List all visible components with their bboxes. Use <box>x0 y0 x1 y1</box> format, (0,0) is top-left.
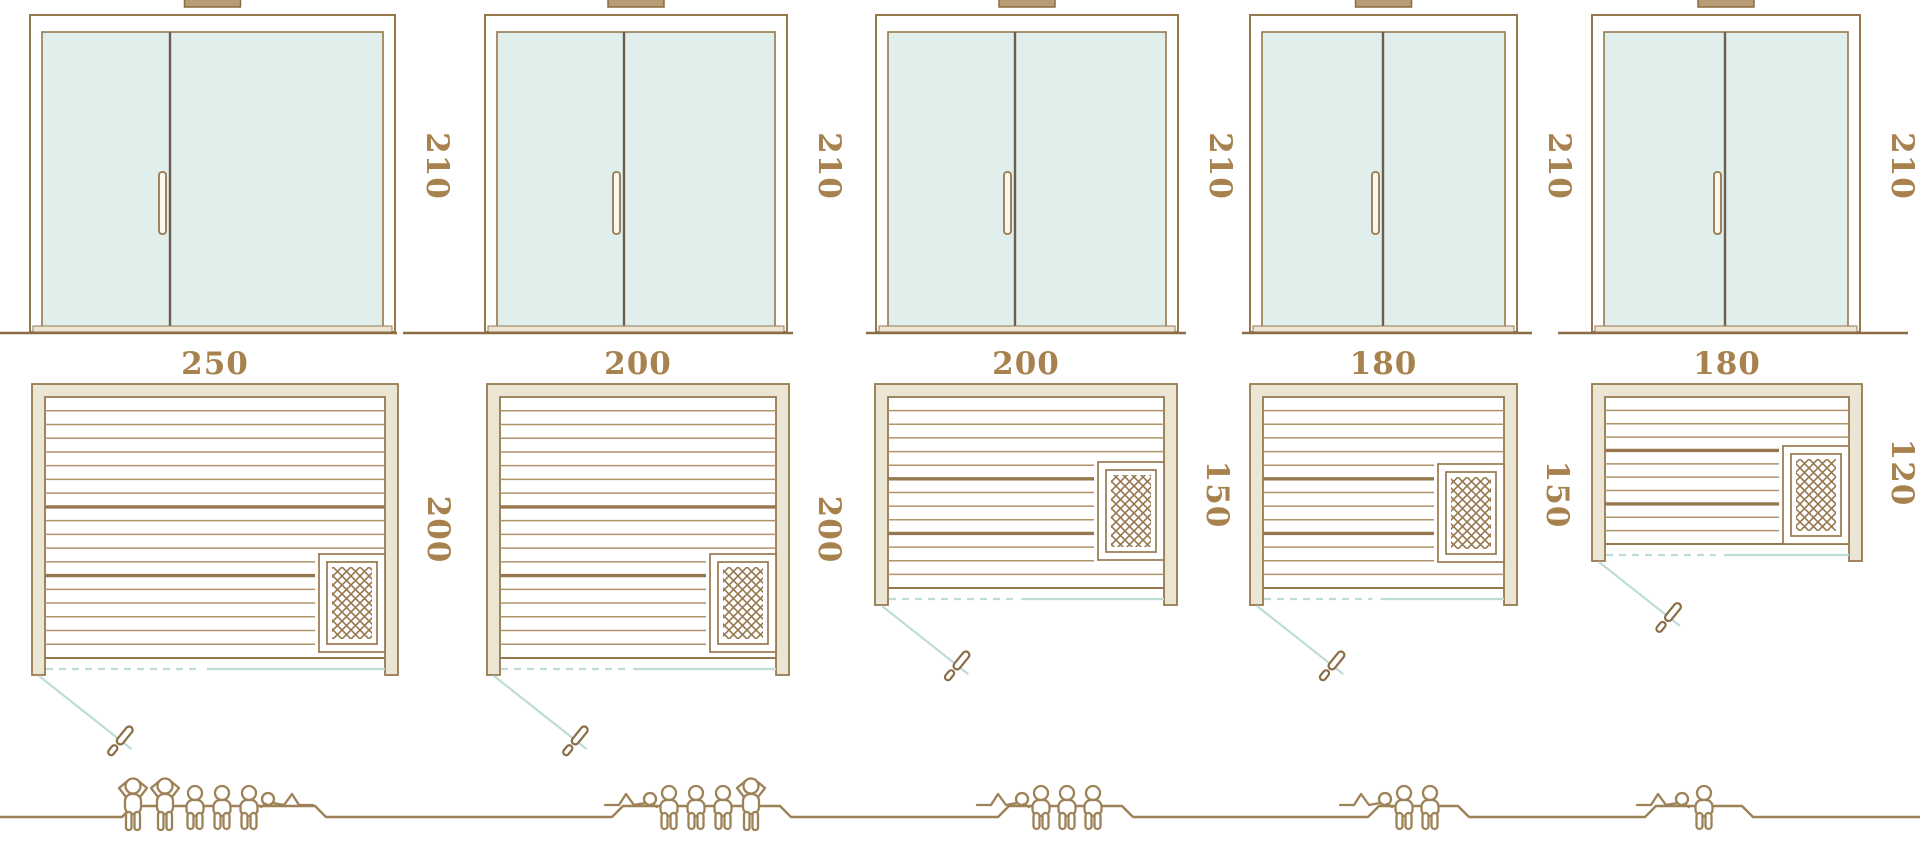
people-capacity-group-1 <box>119 779 313 831</box>
door-leaf-icon <box>943 650 970 682</box>
width-dimension-label: 180 <box>1350 346 1418 382</box>
person-lying-icon <box>977 793 1029 807</box>
sauna-column-sauna-180x120: 210180120 <box>1558 0 1920 633</box>
heater-lattice-icon <box>1796 459 1836 531</box>
roof-vent-cap <box>999 0 1055 7</box>
person-sitting-icon <box>241 786 258 829</box>
door-handle-icon <box>613 172 620 234</box>
person-standing-icon <box>151 779 179 831</box>
sauna-column-sauna-250x200: 210250200 <box>0 0 456 757</box>
door-handle-icon <box>1714 172 1721 234</box>
sauna-sizes-canvas: 2102502002102002002102001502101801502101… <box>0 0 1920 856</box>
person-sitting-icon <box>661 786 678 829</box>
width-dimension-label: 180 <box>1693 346 1761 382</box>
width-dimension-label: 200 <box>992 346 1060 382</box>
person-sitting-icon <box>715 786 732 829</box>
roof-vent-cap <box>185 0 241 7</box>
people-capacity-group-2 <box>605 779 765 831</box>
height-dimension-label: 210 <box>419 132 455 200</box>
door-leaf-icon <box>562 725 589 757</box>
roof-vent-cap <box>1356 0 1412 7</box>
people-capacity-group-3 <box>977 786 1102 829</box>
door-handle-icon <box>159 172 166 234</box>
sauna-column-sauna-200x200: 210200200 <box>403 0 847 757</box>
person-standing-icon <box>119 779 147 831</box>
depth-dimension-label: 150 <box>1199 461 1235 529</box>
heater-lattice-icon <box>1451 477 1491 549</box>
person-sitting-icon <box>1085 786 1102 829</box>
height-dimension-label: 210 <box>811 132 847 200</box>
height-dimension-label: 210 <box>1884 132 1920 200</box>
glass-panel <box>42 32 383 329</box>
glass-panel <box>497 32 775 329</box>
sauna-column-sauna-180x150: 210180150 <box>1242 0 1577 682</box>
person-sitting-icon <box>214 786 231 829</box>
people-capacity-group-5 <box>1637 786 1713 829</box>
door-threshold <box>488 326 784 332</box>
height-dimension-label: 210 <box>1541 132 1577 200</box>
depth-dimension-label: 200 <box>811 496 847 564</box>
person-sitting-icon <box>1033 786 1050 829</box>
people-capacity-group-4 <box>1340 786 1439 829</box>
sauna-sizes-diagram: 2102502002102002002102001502101801502101… <box>0 0 1920 856</box>
depth-dimension-label: 150 <box>1539 461 1575 529</box>
heater-lattice-icon <box>332 567 372 639</box>
door-threshold <box>33 326 392 332</box>
glass-panel <box>888 32 1166 329</box>
width-dimension-label: 250 <box>181 346 249 382</box>
person-standing-icon <box>737 779 765 831</box>
door-threshold <box>879 326 1175 332</box>
heater-lattice-icon <box>723 567 763 639</box>
door-leaf-icon <box>1318 650 1345 682</box>
capacity-ground-line <box>0 806 1920 817</box>
door-leaf-icon <box>1655 602 1682 634</box>
door-leaf-icon <box>107 725 134 757</box>
height-dimension-label: 210 <box>1202 132 1238 200</box>
width-dimension-label: 200 <box>604 346 672 382</box>
person-sitting-icon <box>688 786 705 829</box>
depth-dimension-label: 200 <box>420 496 456 564</box>
heater-lattice-icon <box>1111 475 1151 547</box>
person-sitting-icon <box>1396 786 1413 829</box>
door-handle-icon <box>1372 172 1379 234</box>
roof-vent-cap <box>1698 0 1754 7</box>
person-lying-icon <box>1340 793 1392 807</box>
sauna-column-sauna-200x150: 210200150 <box>866 0 1238 682</box>
person-sitting-icon <box>1422 786 1439 829</box>
depth-dimension-label: 120 <box>1884 439 1920 507</box>
roof-vent-cap <box>608 0 664 7</box>
person-sitting-icon <box>187 786 204 829</box>
door-handle-icon <box>1004 172 1011 234</box>
door-threshold <box>1253 326 1514 332</box>
person-sitting-icon <box>1696 786 1713 829</box>
person-sitting-icon <box>1059 786 1076 829</box>
door-threshold <box>1595 326 1857 332</box>
